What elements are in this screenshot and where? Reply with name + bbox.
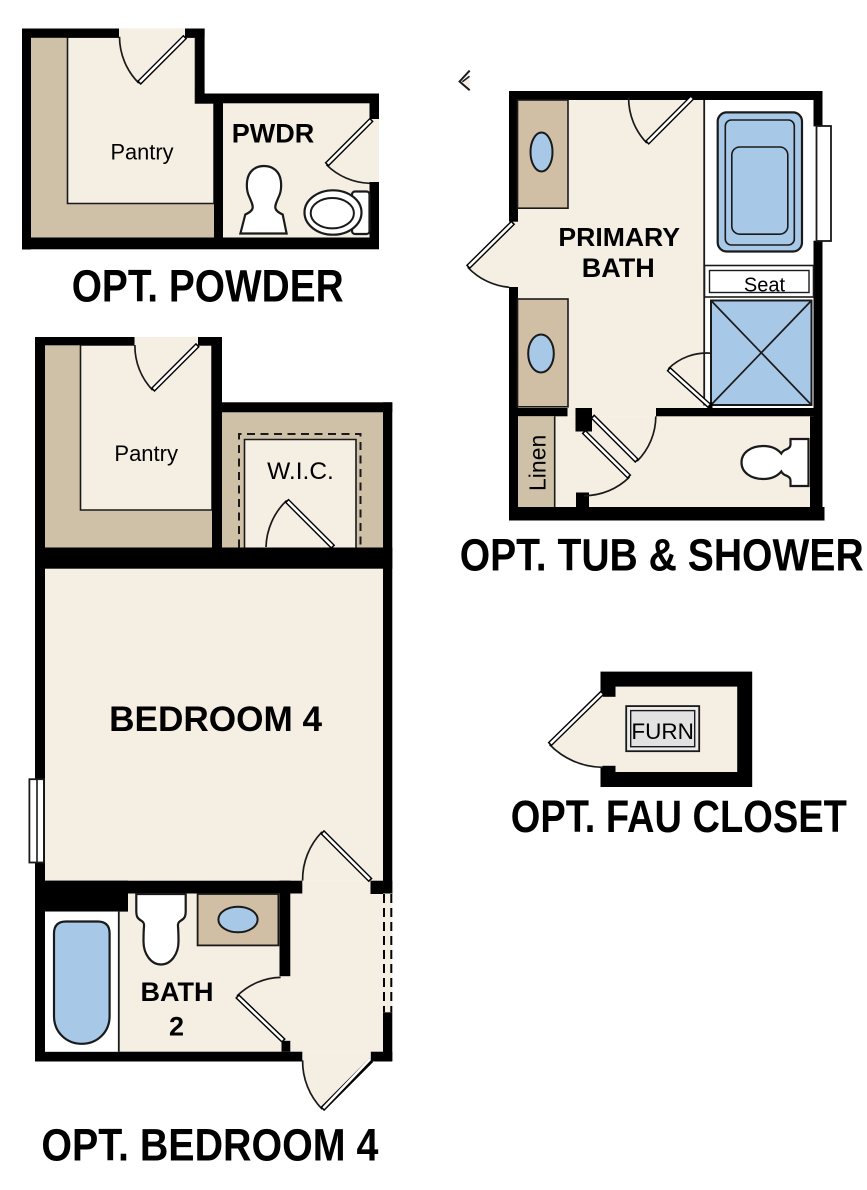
svg-text:BATH: BATH bbox=[582, 253, 655, 283]
svg-text:OPT. POWDER: OPT. POWDER bbox=[72, 261, 344, 312]
svg-text:Pantry: Pantry bbox=[114, 441, 178, 466]
svg-text:2: 2 bbox=[169, 1012, 184, 1042]
svg-text:BATH: BATH bbox=[141, 977, 214, 1007]
svg-text:PWDR: PWDR bbox=[232, 118, 315, 148]
svg-text:BEDROOM 4: BEDROOM 4 bbox=[109, 700, 323, 739]
svg-text:Seat: Seat bbox=[744, 275, 786, 297]
svg-text:FURN: FURN bbox=[631, 719, 694, 744]
svg-text:Pantry: Pantry bbox=[111, 140, 174, 165]
svg-text:Linen: Linen bbox=[525, 435, 551, 491]
svg-text:OPT. BEDROOM 4: OPT. BEDROOM 4 bbox=[41, 1119, 378, 1170]
svg-text:PRIMARY: PRIMARY bbox=[558, 222, 680, 252]
svg-text:W.I.C.: W.I.C. bbox=[267, 458, 334, 485]
svg-text:OPT. FAU CLOSET: OPT. FAU CLOSET bbox=[511, 791, 847, 842]
svg-text:OPT. TUB & SHOWER: OPT. TUB & SHOWER bbox=[460, 530, 864, 581]
